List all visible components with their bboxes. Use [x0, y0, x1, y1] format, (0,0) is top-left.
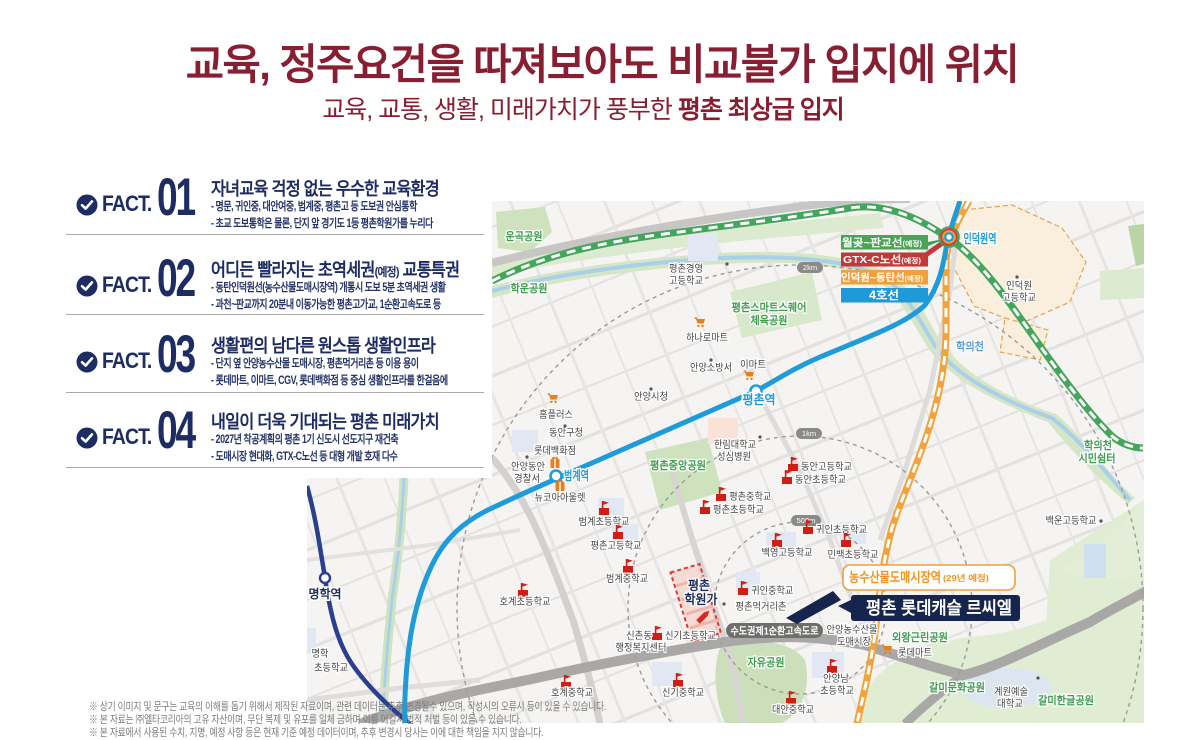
svg-text:수도권제1순환고속도로: 수도권제1순환고속도로 [731, 625, 819, 638]
svg-text:성심병원: 성심병원 [717, 451, 751, 463]
svg-text:홈플러스: 홈플러스 [539, 408, 573, 421]
svg-text:안양소방서: 안양소방서 [690, 362, 732, 374]
svg-text:자유공원: 자유공원 [748, 655, 785, 669]
svg-text:명학: 명학 [312, 648, 329, 660]
svg-text:1km: 1km [802, 429, 816, 438]
svg-text:귀인초등학교: 귀인초등학교 [816, 524, 867, 536]
svg-text:동안초등학교: 동안초등학교 [795, 474, 846, 486]
svg-text:신촌동: 신촌동 [626, 630, 652, 642]
svg-text:초등학교: 초등학교 [820, 685, 854, 697]
svg-text:갈미문화공원: 갈미문화공원 [929, 680, 985, 694]
svg-text:안양시청: 안양시청 [634, 391, 668, 403]
svg-text:학원가: 학원가 [685, 592, 718, 607]
svg-text:뉴코아아울렛: 뉴코아아울렛 [535, 492, 586, 504]
svg-text:인덕원: 인덕원 [1006, 280, 1032, 292]
svg-text:운곡공원: 운곡공원 [506, 229, 543, 243]
svg-text:안양동안: 안양동안 [511, 461, 545, 473]
svg-text:평촌고등학교: 평촌고등학교 [591, 540, 642, 552]
svg-text:이마트: 이마트 [740, 359, 766, 371]
svg-text:평촌초등학교: 평촌초등학교 [713, 504, 764, 516]
svg-text:2km: 2km [803, 263, 817, 272]
svg-text:인덕원역: 인덕원역 [964, 231, 997, 246]
svg-text:평촌스마트스퀘어: 평촌스마트스퀘어 [732, 300, 807, 314]
svg-text:학의천: 학의천 [956, 339, 984, 353]
svg-text:평촌역: 평촌역 [743, 392, 776, 407]
svg-text:고등학교: 고등학교 [1002, 292, 1036, 304]
svg-text:갈미한글공원: 갈미한글공원 [1038, 693, 1094, 707]
svg-text:롯데마트: 롯데마트 [898, 647, 932, 659]
svg-text:초등학교: 초등학교 [314, 662, 348, 674]
svg-text:평촌먹거리촌: 평촌먹거리촌 [736, 601, 787, 613]
svg-text:백운고등학교: 백운고등학교 [1046, 515, 1097, 527]
svg-text:범계역: 범계역 [564, 468, 589, 483]
svg-text:행정복지센터: 행정복지센터 [616, 642, 667, 654]
svg-text:평촌경영: 평촌경영 [669, 262, 703, 275]
svg-text:외왕근린공원: 외왕근린공원 [892, 630, 948, 644]
svg-text:평촌 롯데캐슬 르씨엘: 평촌 롯데캐슬 르씨엘 [866, 598, 1012, 618]
svg-text:도매시장: 도매시장 [837, 636, 871, 648]
svg-text:범계초등학교: 범계초등학교 [579, 516, 630, 528]
svg-text:동안구청: 동안구청 [549, 427, 583, 439]
svg-text:범계중학교: 범계중학교 [606, 573, 648, 585]
svg-text:귀인중학교: 귀인중학교 [751, 585, 793, 597]
svg-text:한림대학교: 한림대학교 [714, 439, 756, 451]
svg-text:경찰서: 경찰서 [514, 472, 540, 485]
svg-text:대학교: 대학교 [997, 698, 1023, 710]
svg-text:농수산물도매시장역: 농수산물도매시장역 [849, 569, 941, 585]
svg-text:롯데백화점: 롯데백화점 [534, 445, 576, 457]
svg-text:명학역: 명학역 [309, 586, 342, 601]
svg-text:시민쉼터: 시민쉼터 [1079, 451, 1116, 465]
svg-text:호계초등학교: 호계초등학교 [500, 596, 551, 608]
svg-text:(29년 예정): (29년 예정) [943, 573, 989, 583]
svg-text:백영고등학교: 백영고등학교 [762, 547, 813, 559]
svg-text:신기초등학교: 신기초등학교 [665, 630, 716, 642]
svg-text:평촌중앙공원: 평촌중앙공원 [650, 458, 706, 472]
svg-text:안양남: 안양남 [823, 673, 849, 685]
svg-text:평촌중학교: 평촌중학교 [729, 491, 771, 503]
svg-text:대안중학교: 대안중학교 [772, 704, 814, 716]
svg-text:평촌: 평촌 [688, 578, 710, 593]
svg-text:체육공원: 체육공원 [751, 313, 788, 327]
svg-text:계원예술: 계원예술 [994, 686, 1028, 698]
svg-text:하나로마트: 하나로마트 [686, 331, 728, 344]
svg-text:고등학교: 고등학교 [669, 275, 703, 287]
svg-text:학의천: 학의천 [1084, 438, 1112, 452]
svg-text:4호선: 4호선 [869, 288, 899, 302]
svg-text:민백초등학교: 민백초등학교 [828, 549, 879, 561]
svg-text:안양농수산물: 안양농수산물 [827, 624, 878, 636]
svg-text:신기중학교: 신기중학교 [662, 687, 704, 699]
svg-text:학운공원: 학운공원 [511, 281, 548, 295]
svg-text:동안고등학교: 동안고등학교 [801, 461, 852, 473]
